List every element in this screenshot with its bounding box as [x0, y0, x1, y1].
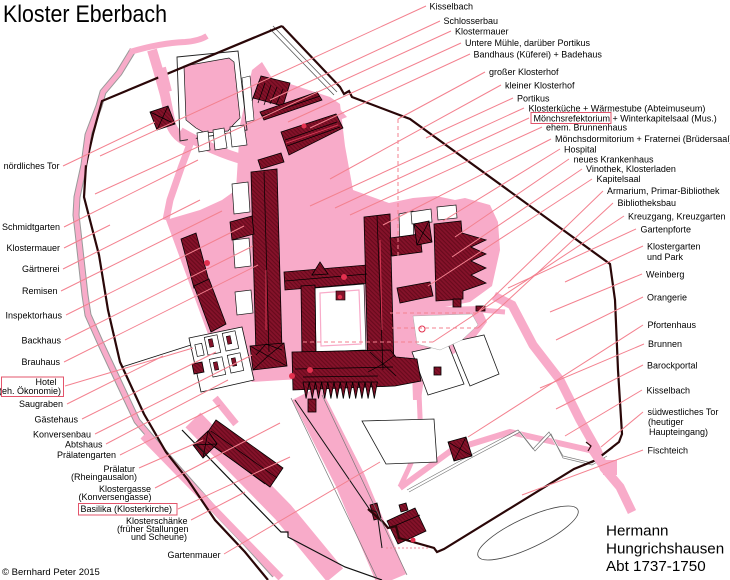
svg-text:Weinberg: Weinberg	[646, 270, 684, 280]
svg-text:Armarium, Primar-Bibliothek: Armarium, Primar-Bibliothek	[607, 186, 720, 196]
svg-text:Kapitelsaal: Kapitelsaal	[597, 174, 641, 184]
svg-text:nördliches Tor: nördliches Tor	[4, 161, 60, 171]
svg-text:Gartenmauer: Gartenmauer	[167, 550, 220, 560]
svg-text:Klostermauer: Klostermauer	[455, 27, 509, 37]
svg-text:Kloster Eberbach: Kloster Eberbach	[3, 1, 167, 28]
svg-text:Haupteingang): Haupteingang)	[649, 427, 708, 437]
svg-text:© Bernhard Peter 2015: © Bernhard Peter 2015	[2, 567, 100, 578]
svg-text:großer Klosterhof: großer Klosterhof	[489, 67, 559, 77]
svg-text:Fischteich: Fischteich	[648, 446, 689, 456]
svg-text:Vinothek, Klosterladen: Vinothek, Klosterladen	[586, 164, 676, 174]
svg-text:Barockportal: Barockportal	[647, 361, 698, 371]
svg-text:Hospital: Hospital	[564, 145, 597, 155]
svg-text:Gästehaus: Gästehaus	[34, 415, 78, 425]
svg-text:Orangerie: Orangerie	[647, 293, 687, 303]
svg-text:und Park: und Park	[647, 252, 684, 262]
svg-text:Kreuzgang, Kreuzgarten: Kreuzgang, Kreuzgarten	[628, 212, 726, 222]
svg-text:und Scheune): und Scheune)	[131, 532, 187, 542]
svg-text:Gärtnerei: Gärtnerei	[22, 264, 60, 274]
svg-text:Kisselbach: Kisselbach	[647, 386, 691, 396]
svg-text:(Konversengasse): (Konversengasse)	[78, 492, 151, 502]
svg-text:Hungrichshausen: Hungrichshausen	[606, 541, 724, 558]
svg-text:Abtshaus: Abtshaus	[65, 440, 103, 450]
svg-text:Klostermauer: Klostermauer	[6, 243, 60, 253]
svg-text:Kisselbach: Kisselbach	[430, 2, 474, 12]
svg-text:(eh. Ökonomie): (eh. Ökonomie)	[0, 386, 61, 396]
svg-text:(heutiger: (heutiger	[648, 417, 684, 427]
svg-text:(Rheingausalon): (Rheingausalon)	[71, 472, 137, 482]
svg-text:Brauhaus: Brauhaus	[21, 357, 60, 367]
svg-text:Bandhaus (Küferei) + Badehaus: Bandhaus (Küferei) + Badehaus	[474, 50, 603, 60]
svg-text:Gartenpforte: Gartenpforte	[641, 225, 692, 235]
svg-text:Abt 1737-1750: Abt 1737-1750	[606, 558, 706, 575]
svg-text:Klostergarten: Klostergarten	[647, 242, 701, 252]
svg-text:Hermann: Hermann	[606, 523, 668, 540]
svg-text:Schlosserbau: Schlosserbau	[444, 16, 499, 26]
svg-text:Remisen: Remisen	[22, 286, 58, 296]
svg-text:Backhaus: Backhaus	[21, 336, 61, 346]
svg-text:südwestliches Tor: südwestliches Tor	[648, 407, 719, 417]
svg-text:neues Krankenhaus: neues Krankenhaus	[574, 155, 655, 165]
svg-text:Basilika (Klosterkirche): Basilika (Klosterkirche)	[80, 504, 172, 514]
svg-text:Mönchsdormitorium + Fraternei: Mönchsdormitorium + Fraternei (Brüdersaa…	[555, 134, 730, 144]
svg-text:Konversenbau: Konversenbau	[33, 430, 91, 440]
svg-text:Inspektorhaus: Inspektorhaus	[5, 311, 62, 321]
svg-text:Brunnen: Brunnen	[648, 339, 682, 349]
svg-text:Untere Mühle, darüber Portikus: Untere Mühle, darüber Portikus	[465, 38, 591, 48]
svg-text:Prälatengarten: Prälatengarten	[57, 450, 116, 460]
svg-text:Bibliotheksbau: Bibliotheksbau	[618, 198, 677, 208]
svg-text:Pfortenhaus: Pfortenhaus	[648, 320, 697, 330]
svg-text:Saugraben: Saugraben	[19, 399, 63, 409]
svg-text:Schmidtgarten: Schmidtgarten	[2, 222, 60, 232]
svg-text:Portikus: Portikus	[517, 94, 550, 104]
svg-text:kleiner Klosterhof: kleiner Klosterhof	[505, 81, 575, 91]
